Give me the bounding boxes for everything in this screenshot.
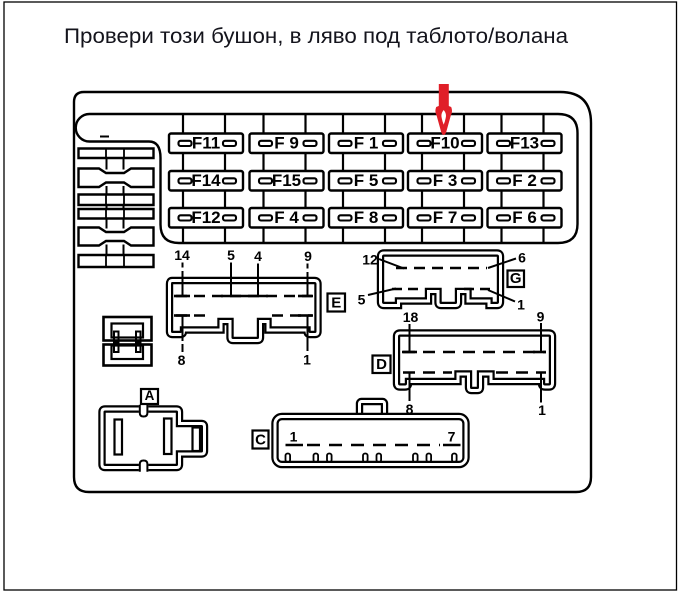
svg-text:F12: F12 — [191, 208, 220, 227]
svg-text:F 2: F 2 — [512, 171, 537, 190]
svg-text:F15: F15 — [272, 171, 301, 190]
svg-text:7: 7 — [448, 429, 456, 445]
svg-text:8: 8 — [406, 401, 414, 417]
svg-text:18: 18 — [403, 309, 419, 325]
svg-text:C: C — [255, 432, 266, 449]
svg-text:G: G — [510, 270, 522, 287]
svg-text:F13: F13 — [510, 134, 539, 153]
svg-text:F 9: F 9 — [274, 134, 299, 153]
svg-text:F 1: F 1 — [354, 134, 379, 153]
svg-text:4: 4 — [254, 248, 262, 264]
svg-text:1: 1 — [538, 402, 546, 418]
svg-text:14: 14 — [174, 247, 190, 263]
svg-text:A: A — [145, 388, 155, 403]
svg-text:12: 12 — [362, 252, 378, 268]
svg-text:E: E — [331, 295, 341, 312]
svg-text:5: 5 — [227, 247, 235, 263]
svg-text:F 8: F 8 — [354, 208, 379, 227]
svg-text:8: 8 — [178, 352, 186, 368]
svg-text:1: 1 — [517, 297, 525, 313]
svg-text:D: D — [376, 356, 387, 373]
svg-text:5: 5 — [358, 292, 366, 308]
svg-text:6: 6 — [518, 250, 526, 266]
svg-text:1: 1 — [303, 352, 311, 368]
svg-text:9: 9 — [537, 309, 545, 325]
svg-text:F 4: F 4 — [274, 208, 299, 227]
svg-text:F14: F14 — [191, 171, 221, 190]
svg-text:F 3: F 3 — [433, 171, 458, 190]
svg-text:9: 9 — [304, 248, 312, 264]
svg-text:F11: F11 — [192, 134, 220, 153]
svg-text:F 6: F 6 — [512, 208, 537, 227]
svg-text:F10: F10 — [430, 134, 459, 153]
svg-text:F 5: F 5 — [354, 171, 379, 190]
svg-text:Провери този бушон, в ляво под: Провери този бушон, в ляво под таблото/в… — [64, 25, 568, 48]
svg-text:1: 1 — [290, 429, 298, 445]
svg-text:F 7: F 7 — [433, 208, 458, 227]
